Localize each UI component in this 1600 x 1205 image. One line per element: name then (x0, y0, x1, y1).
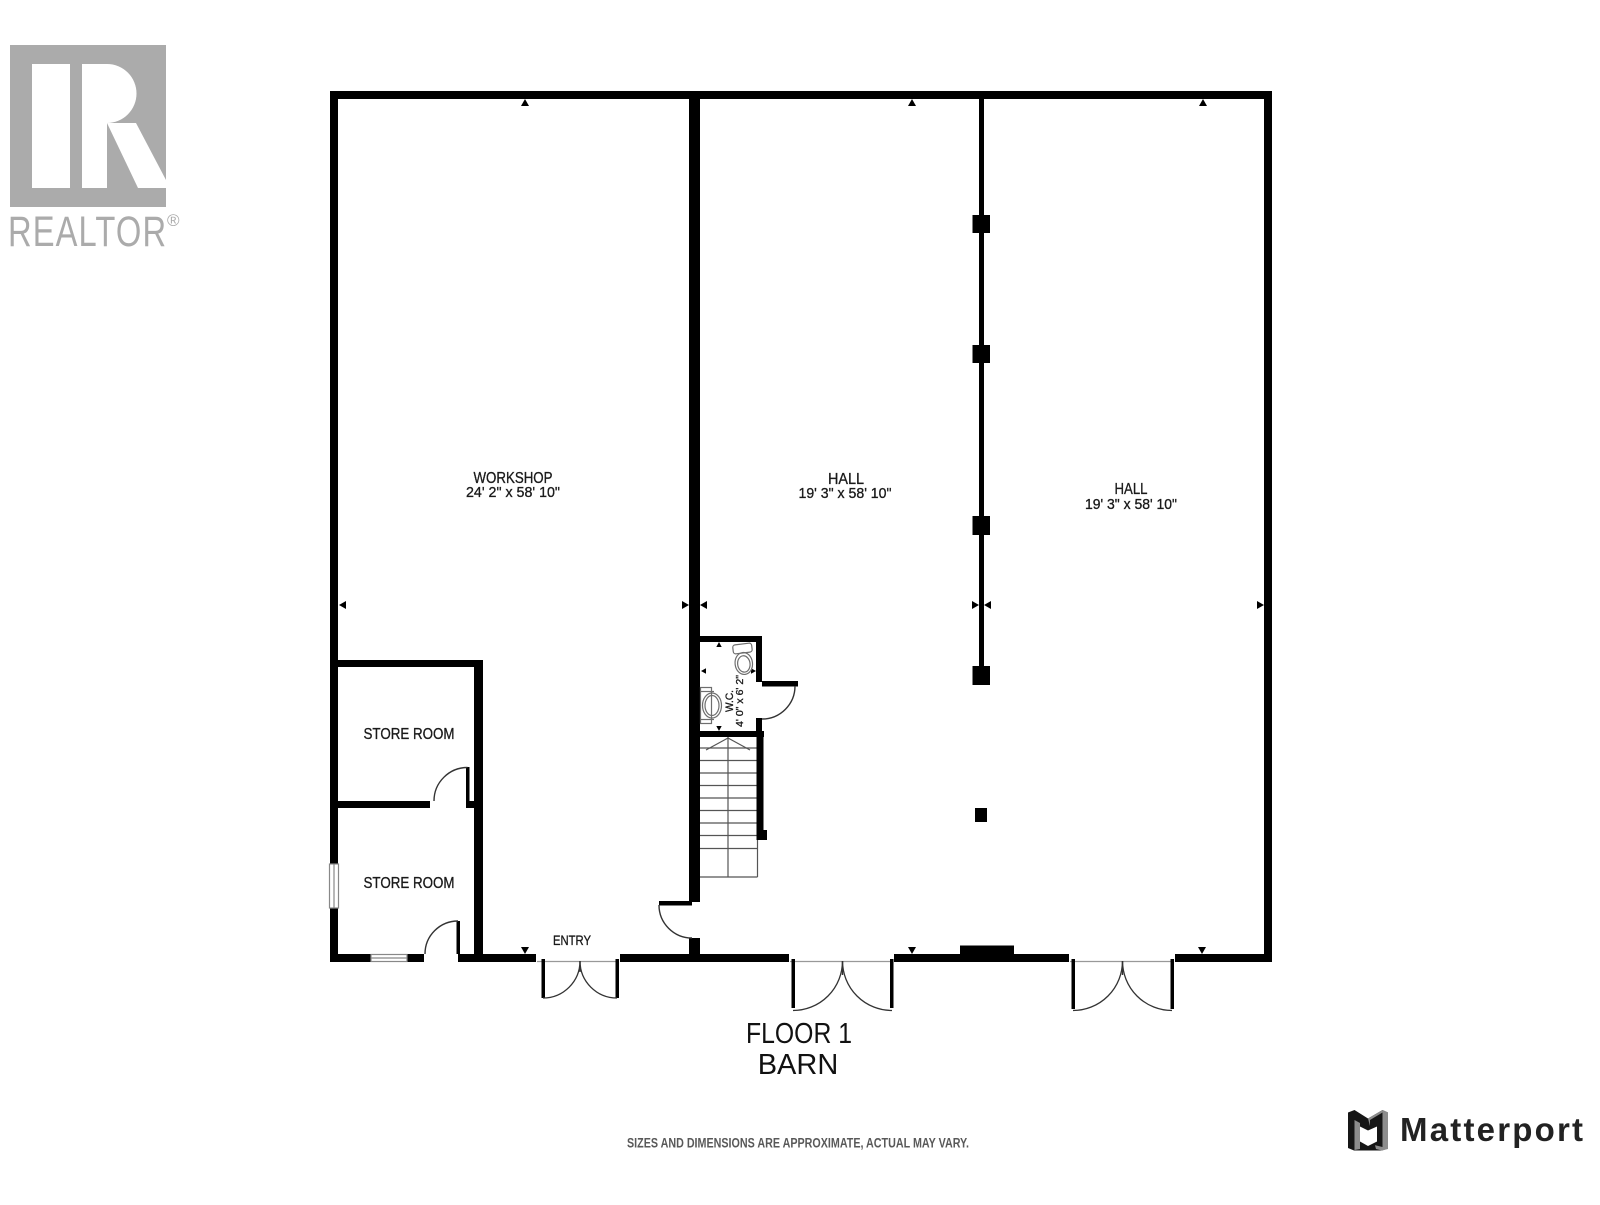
svg-text:FLOOR 1: FLOOR 1 (746, 1018, 852, 1050)
svg-text:STORE ROOM: STORE ROOM (364, 726, 455, 743)
svg-text:SIZES AND DIMENSIONS ARE APPRO: SIZES AND DIMENSIONS ARE APPROXIMATE, AC… (627, 1136, 969, 1151)
svg-text:®: ® (167, 211, 180, 230)
svg-text:ENTRY: ENTRY (553, 932, 592, 948)
svg-text:19' 3" x 58' 10": 19' 3" x 58' 10" (1085, 496, 1177, 513)
svg-text:STORE ROOM: STORE ROOM (364, 875, 455, 892)
svg-text:4' 0" x 6' 2": 4' 0" x 6' 2" (734, 675, 746, 727)
svg-text:19' 3" x 58' 10": 19' 3" x 58' 10" (799, 485, 892, 502)
svg-text:BARN: BARN (758, 1049, 839, 1081)
svg-text:24' 2" x 58' 10": 24' 2" x 58' 10" (466, 484, 560, 501)
